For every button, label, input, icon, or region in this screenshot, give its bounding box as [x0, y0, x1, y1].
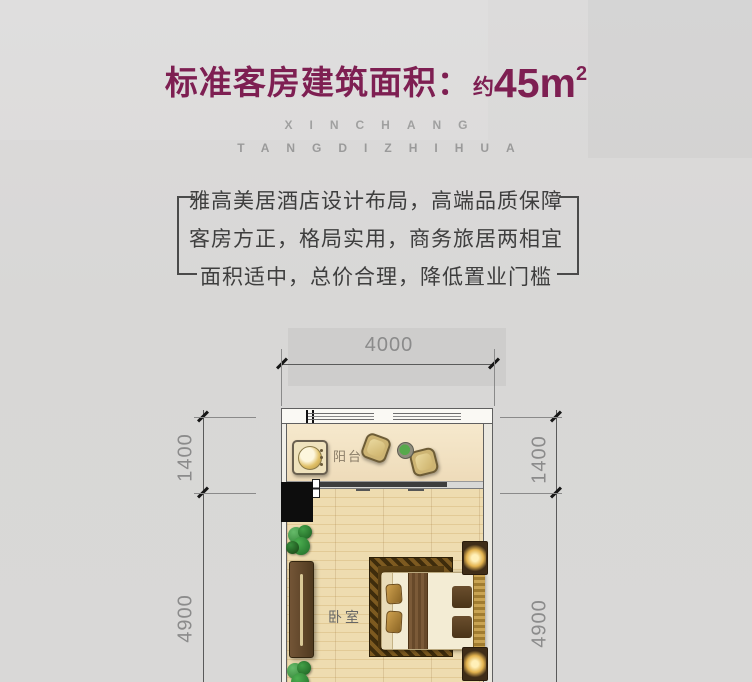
double-bed: [381, 572, 485, 650]
window-segment: [393, 413, 461, 420]
lamp-glow: [464, 543, 486, 573]
dimension-left-upper-label: 1400: [175, 426, 198, 490]
tv-console: [289, 561, 314, 658]
tv-console-groove: [300, 574, 303, 646]
nightstand: [462, 541, 488, 575]
nightstand: [462, 647, 488, 681]
washing-machine-drum: [298, 446, 322, 470]
bed-pillow: [452, 616, 472, 638]
title-approx: 约: [473, 76, 494, 99]
bracket-right-bottom: [557, 273, 579, 275]
page-title: 标准客房建筑面积：约45m2: [0, 56, 752, 107]
selling-point-3: 面积适中，总价合理，降低置业门槛: [0, 259, 752, 297]
poster: 标准客房建筑面积：约45m2 XINCHANG TANGDIZHIHUA 雅高美…: [0, 0, 752, 682]
dimension-right-lower-label: 4900: [529, 592, 552, 656]
dimension-right-upper-label: 1400: [529, 428, 552, 492]
bed-headboard: [473, 573, 485, 649]
title-area-superscript: 2: [576, 63, 587, 85]
door-track-dash: [356, 489, 370, 491]
dimension-extension-line: [500, 493, 562, 494]
door-jamb: [312, 479, 320, 498]
decorative-pillow: [385, 611, 402, 634]
window-segment: [308, 413, 374, 420]
dimension-extension-line: [500, 417, 562, 418]
title-main: 标准客房建筑面积：: [165, 64, 471, 101]
dimension-left-line: [203, 410, 204, 682]
decorative-pillow: [385, 583, 402, 604]
washing-machine: [292, 440, 328, 475]
sliding-door: [319, 482, 447, 487]
title-area-value: 45m: [494, 60, 576, 106]
watermark-line-2: TANGDIZHIHUA: [0, 141, 752, 155]
bed-runner: [408, 573, 428, 649]
dimension-extension-line: [194, 417, 256, 418]
bracket-left-bottom: [177, 273, 197, 275]
bracket-right-vertical: [577, 196, 579, 275]
wall-column-block: [281, 482, 313, 522]
top-wall: [281, 408, 493, 424]
selling-point-1: 雅高美居酒店设计布局，高端品质保障: [0, 183, 752, 221]
dimension-right-line: [556, 410, 557, 682]
dimension-extension-line: [194, 493, 256, 494]
lamp-glow: [464, 649, 486, 679]
selling-points: 雅高美居酒店设计布局，高端品质保障 客房方正，格局实用，商务旅居两相宜 面积适中…: [0, 183, 752, 297]
bed-pillow: [452, 586, 472, 608]
potted-plant: [285, 661, 313, 682]
washing-machine-controls: [320, 449, 323, 452]
bedroom-label: 卧室: [328, 607, 362, 627]
watermark-line-1: XINCHANG: [0, 118, 752, 132]
dimension-top-line: [282, 364, 495, 365]
dimension-top-label: 4000: [337, 334, 441, 357]
dimension-extension-line: [494, 349, 495, 406]
potted-plant: [286, 525, 316, 559]
dimension-extension-line: [281, 349, 282, 406]
bracket-left-top: [177, 196, 195, 198]
door-track-dash: [408, 489, 424, 491]
bracket-right-top: [559, 196, 579, 198]
balcony-label: 阳台: [333, 446, 363, 465]
balcony-plant-table: [397, 442, 414, 459]
dimension-left-lower-label: 4900: [175, 587, 198, 651]
bracket-left-vertical: [177, 196, 179, 275]
selling-point-2: 客房方正，格局实用，商务旅居两相宜: [0, 221, 752, 259]
